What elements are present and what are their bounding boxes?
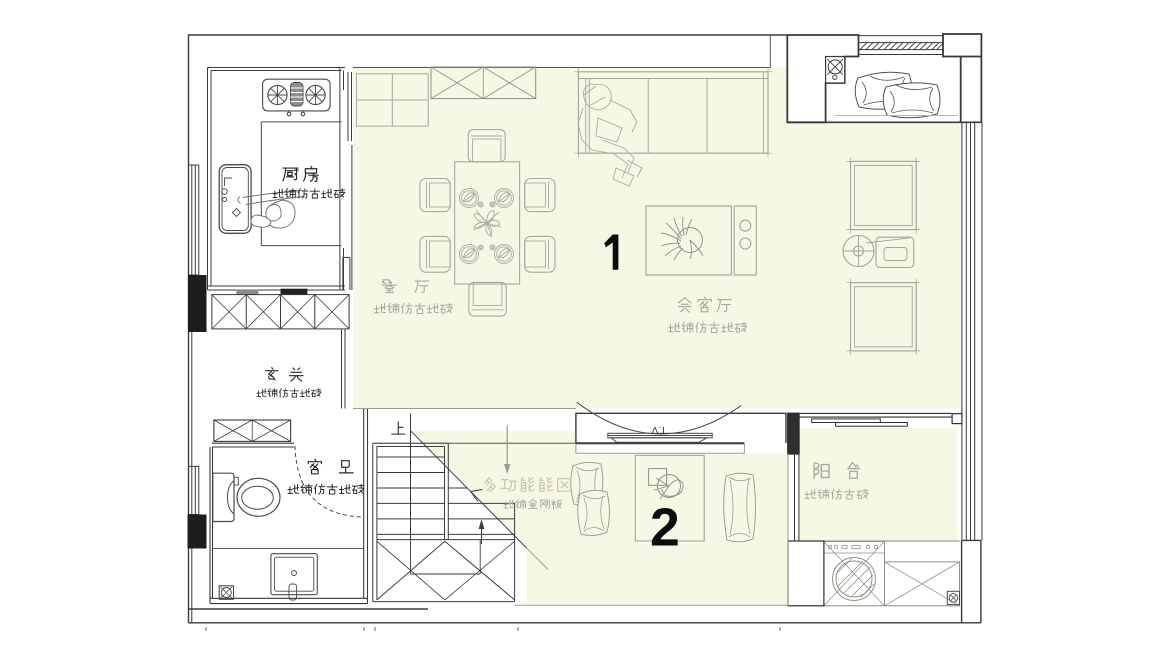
svg-text:2: 2 (650, 498, 680, 557)
svg-text:T.V: T.V (651, 424, 666, 436)
